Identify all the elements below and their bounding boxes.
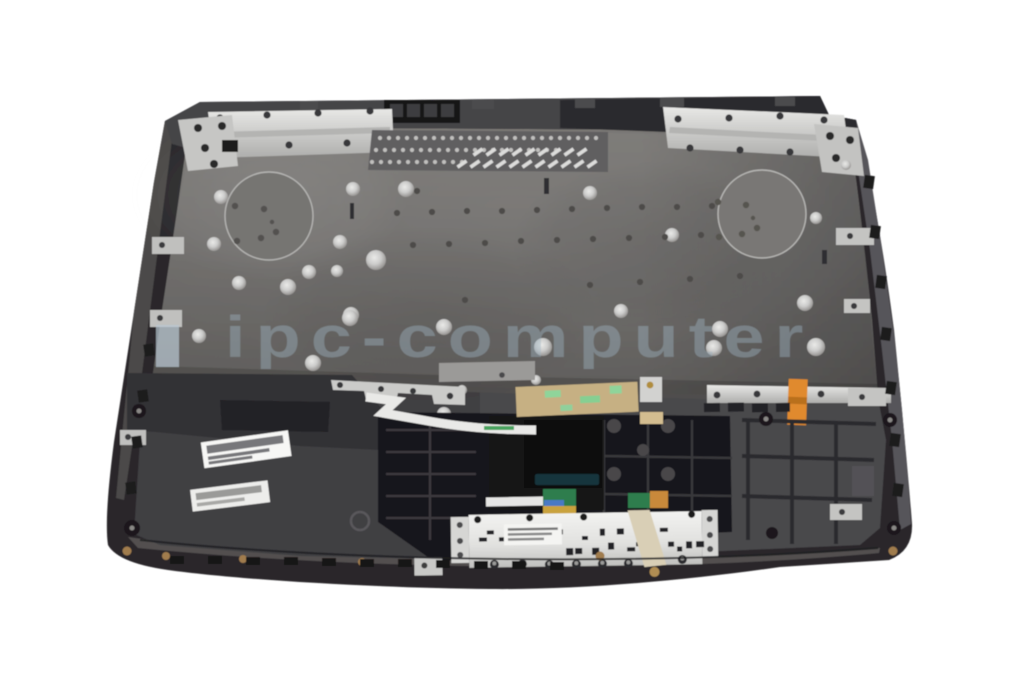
svg-text:ipc-computer: ipc-computer bbox=[225, 305, 813, 370]
